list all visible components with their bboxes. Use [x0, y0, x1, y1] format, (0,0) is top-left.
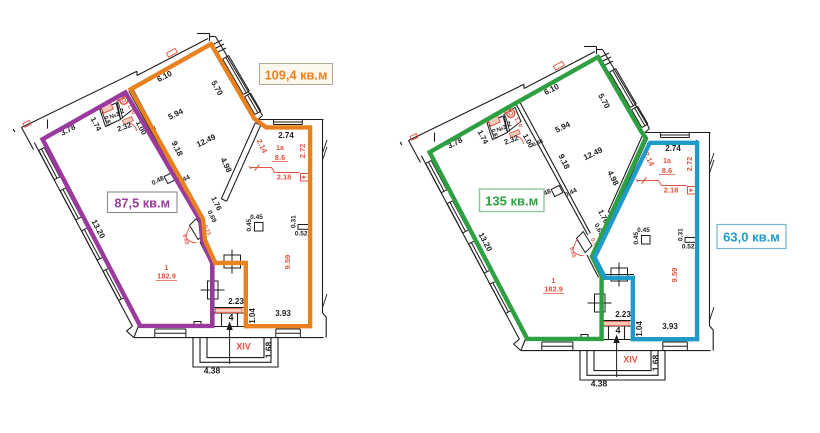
svg-text:5.94: 5.94	[167, 107, 185, 122]
svg-text:4.98: 4.98	[605, 169, 620, 187]
svg-text:0.48: 0.48	[151, 175, 166, 187]
svg-text:1.74: 1.74	[476, 128, 491, 146]
svg-text:63,0 кв.м: 63,0 кв.м	[723, 230, 780, 245]
svg-text:9.18: 9.18	[557, 153, 572, 171]
svg-text:1.68: 1.68	[264, 341, 274, 358]
svg-text:2.14: 2.14	[255, 137, 270, 155]
svg-text:0.31: 0.31	[291, 215, 298, 228]
svg-text:0.52: 0.52	[295, 231, 308, 238]
svg-text:4: 4	[228, 313, 233, 323]
svg-text:2.18: 2.18	[277, 173, 292, 182]
svg-text:4.38: 4.38	[204, 366, 221, 376]
svg-text:2.18: 2.18	[664, 186, 679, 195]
svg-text:2.72: 2.72	[685, 157, 694, 172]
svg-text:2.74: 2.74	[665, 144, 681, 153]
svg-text:1.04: 1.04	[635, 321, 644, 337]
svg-text:2.72: 2.72	[298, 144, 307, 159]
svg-text:109,4 кв.м: 109,4 кв.м	[265, 67, 328, 82]
svg-text:0.52: 0.52	[682, 244, 695, 251]
svg-text:3.93: 3.93	[662, 322, 678, 331]
svg-text:3.93: 3.93	[275, 309, 291, 318]
svg-text:XIV: XIV	[236, 342, 251, 352]
svg-text:0.45: 0.45	[246, 218, 253, 231]
svg-text:4: 4	[615, 326, 620, 336]
svg-text:9.59: 9.59	[670, 268, 679, 283]
svg-text:0.31: 0.31	[678, 228, 685, 241]
svg-text:0.45: 0.45	[633, 231, 640, 244]
svg-text:8.6: 8.6	[662, 166, 672, 175]
svg-text:0.65: 0.65	[568, 247, 577, 259]
svg-text:9.18: 9.18	[170, 140, 185, 158]
svg-text:8.6: 8.6	[275, 153, 285, 162]
svg-text:87,5 кв.м: 87,5 кв.м	[114, 196, 170, 211]
svg-text:2.32: 2.32	[116, 120, 133, 133]
svg-text:2.23: 2.23	[615, 310, 631, 319]
svg-text:5.70: 5.70	[596, 92, 612, 110]
svg-text:9.59: 9.59	[283, 255, 292, 270]
svg-text:135 кв.м: 135 кв.м	[485, 193, 538, 208]
svg-text:2.32: 2.32	[503, 133, 520, 146]
svg-text:1а: 1а	[276, 145, 284, 152]
svg-text:12.49: 12.49	[582, 145, 604, 162]
svg-text:XIV: XIV	[623, 355, 638, 365]
svg-text:1.74: 1.74	[89, 115, 104, 133]
svg-text:0.65: 0.65	[181, 234, 190, 246]
svg-text:5.94: 5.94	[554, 120, 572, 135]
svg-text:182.9: 182.9	[544, 285, 563, 294]
svg-text:2.23: 2.23	[228, 297, 244, 306]
svg-text:2: 2	[506, 121, 512, 129]
svg-text:4.38: 4.38	[591, 379, 608, 389]
svg-text:2: 2	[119, 108, 125, 116]
svg-text:5.70: 5.70	[209, 79, 225, 97]
svg-text:12.49: 12.49	[195, 132, 217, 149]
svg-text:1а: 1а	[663, 158, 671, 165]
svg-text:1.04: 1.04	[248, 308, 257, 324]
svg-text:2.74: 2.74	[278, 131, 294, 140]
svg-text:1.68: 1.68	[651, 354, 661, 371]
svg-text:4.98: 4.98	[218, 156, 233, 174]
svg-text:182.9: 182.9	[157, 272, 176, 281]
